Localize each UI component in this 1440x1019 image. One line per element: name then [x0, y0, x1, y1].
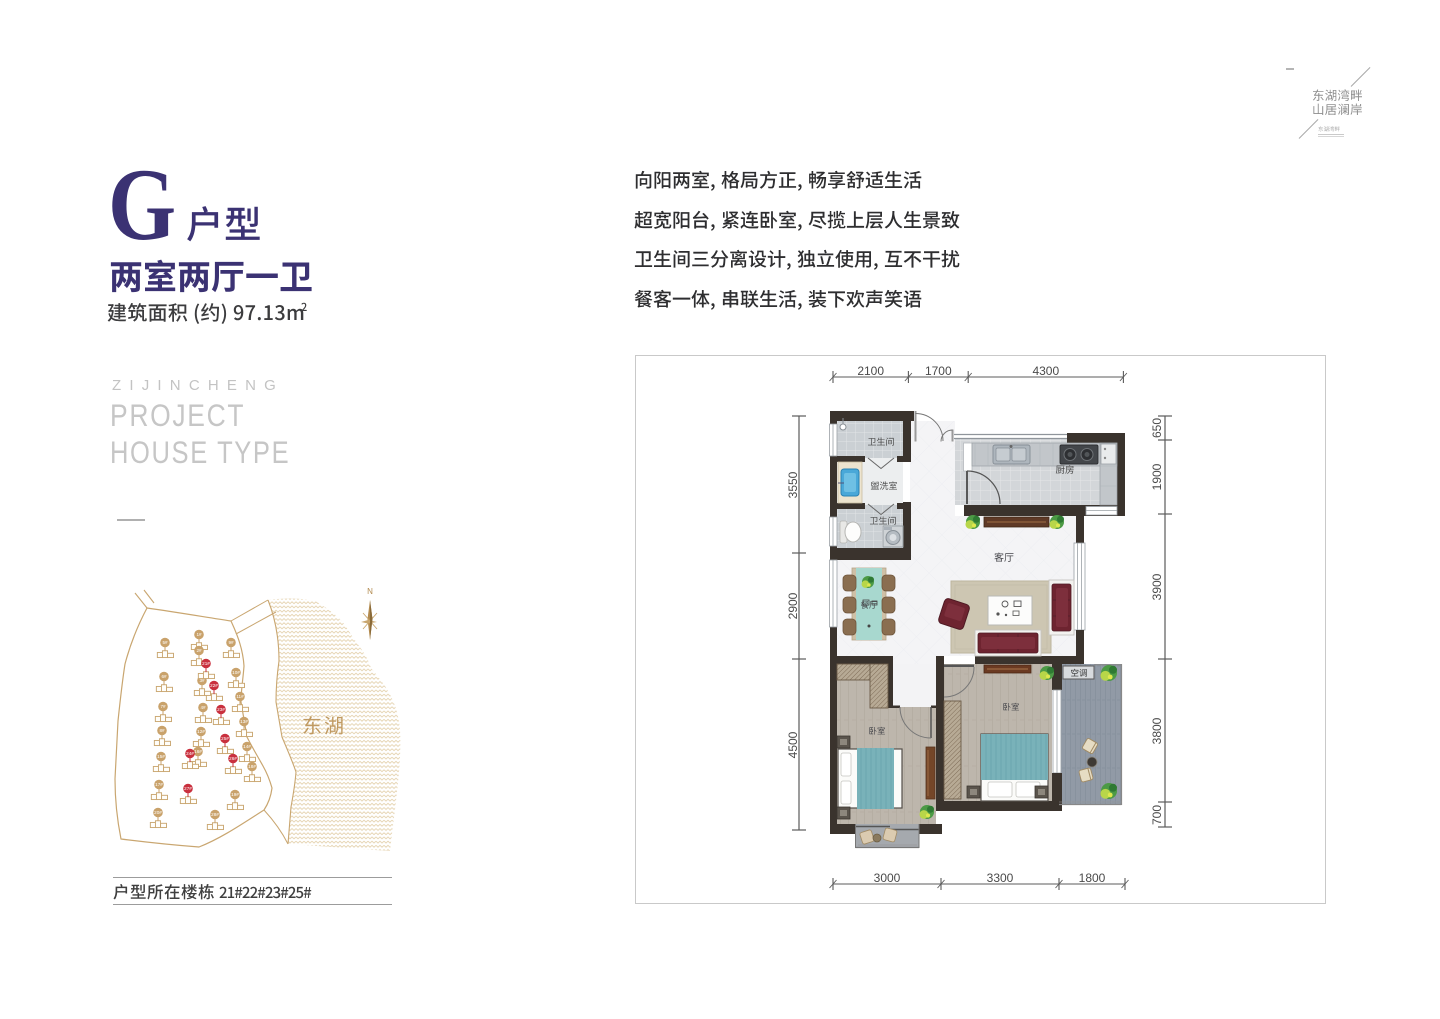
- svg-text:14#: 14#: [243, 744, 251, 749]
- svg-text:25#: 25#: [221, 736, 229, 741]
- svg-text:8#: 8#: [159, 728, 165, 733]
- svg-text:2#: 2#: [196, 648, 202, 653]
- svg-text:21#: 21#: [202, 661, 210, 666]
- svg-text:20#: 20#: [154, 810, 162, 815]
- svg-text:9#: 9#: [228, 640, 234, 645]
- svg-text:11#: 11#: [236, 694, 244, 699]
- svg-text:28#: 28#: [211, 812, 219, 817]
- svg-text:22#: 22#: [210, 683, 218, 688]
- svg-text:6#: 6#: [161, 674, 167, 679]
- svg-text:24#: 24#: [186, 751, 194, 756]
- svg-text:4#: 4#: [200, 705, 206, 710]
- svg-text:1#: 1#: [196, 632, 202, 637]
- svg-text:17#: 17#: [155, 782, 163, 787]
- svg-text:12#: 12#: [197, 729, 205, 734]
- svg-text:27#: 27#: [184, 786, 192, 791]
- svg-text:15#: 15#: [157, 754, 165, 759]
- svg-text:13#: 13#: [240, 719, 248, 724]
- svg-text:18#: 18#: [248, 764, 256, 769]
- svg-text:23#: 23#: [217, 707, 225, 712]
- svg-text:16#: 16#: [194, 749, 202, 754]
- svg-text:10#: 10#: [232, 670, 240, 675]
- svg-text:7#: 7#: [160, 704, 166, 709]
- svg-text:26#: 26#: [229, 756, 237, 761]
- svg-text:5#: 5#: [162, 640, 168, 645]
- svg-text:N: N: [367, 587, 373, 596]
- svg-text:19#: 19#: [231, 792, 239, 797]
